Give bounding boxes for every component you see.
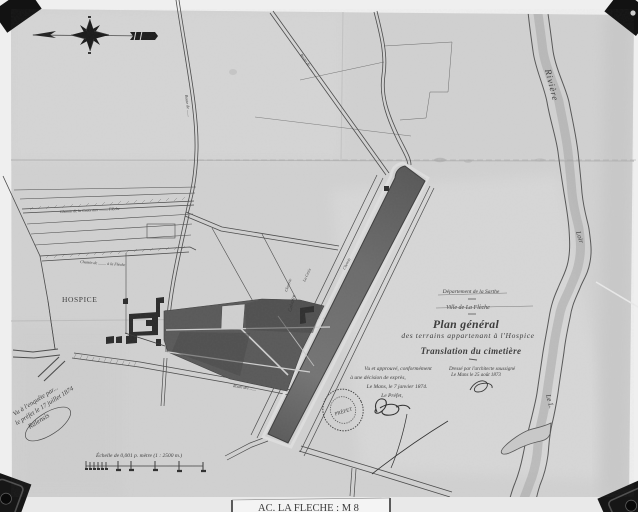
svg-text:AC. LA FLECHE : M 8: AC. LA FLECHE : M 8	[258, 503, 359, 512]
